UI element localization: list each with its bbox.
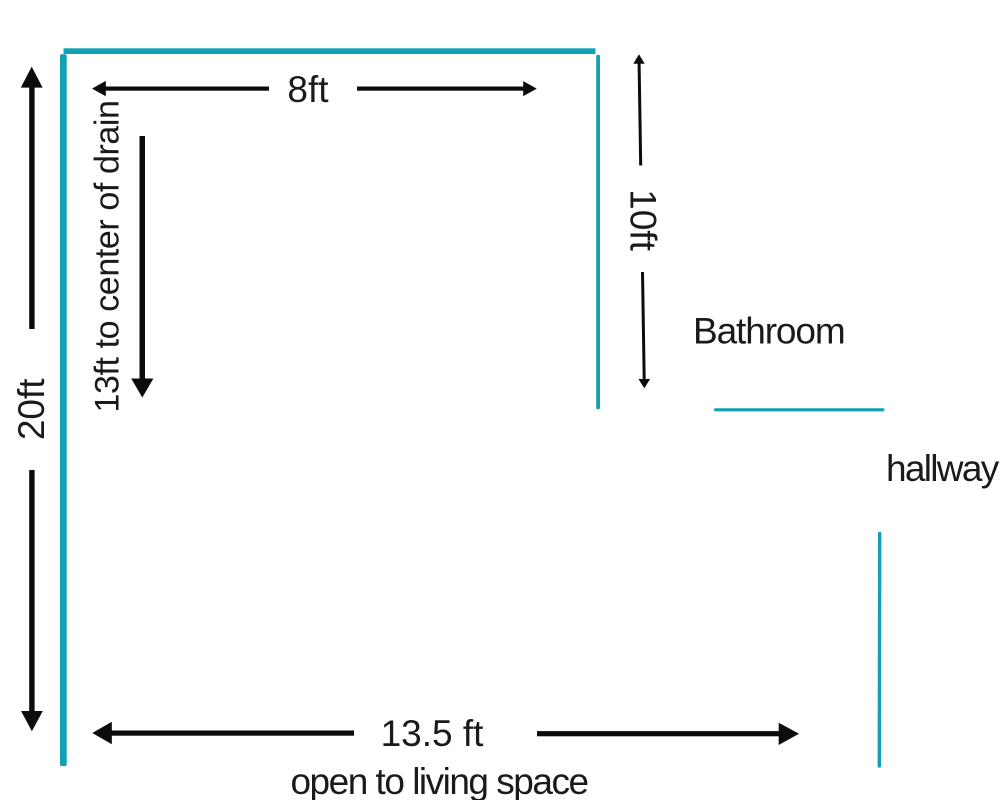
svg-text:Bathroom: Bathroom [693, 310, 845, 351]
svg-text:13.5 ft: 13.5 ft [381, 713, 485, 754]
svg-text:8ft: 8ft [287, 69, 329, 110]
svg-text:20ft: 20ft [11, 378, 52, 440]
svg-text:13ft to center of drain: 13ft to center of drain [88, 100, 126, 412]
svg-text:open to living space: open to living space [290, 761, 587, 800]
svg-text:10ft: 10ft [623, 189, 664, 251]
svg-text:hallway: hallway [886, 448, 1000, 489]
